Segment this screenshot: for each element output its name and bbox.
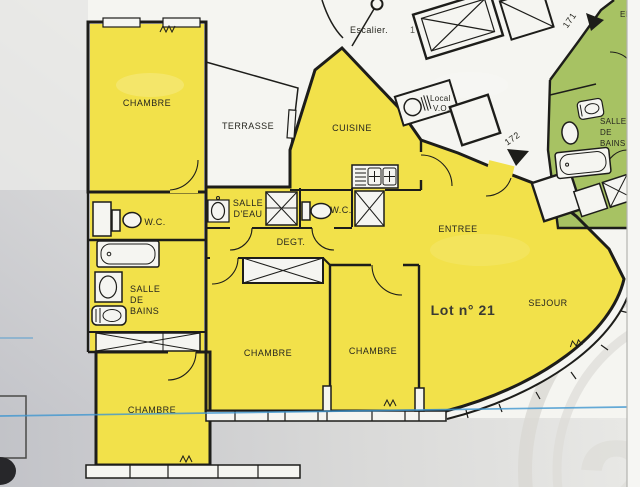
- lot-number-label: Lot n° 21: [431, 302, 496, 318]
- room-label-wc-mid: W.C.: [330, 205, 351, 215]
- toilet-icon-mid: [302, 202, 331, 220]
- page-margin-right: [627, 0, 640, 487]
- room-label-entree: ENTREE: [438, 224, 477, 234]
- closet-icon-degt: [243, 258, 323, 283]
- room-label-chambre-top-left: CHAMBRE: [123, 98, 171, 108]
- bidet-icon-left: [92, 306, 126, 325]
- room-label-sdb-right-3: BAINS: [600, 139, 626, 148]
- floor-plan-svg: 21: [0, 0, 640, 487]
- room-label-sdb-right-2: DE: [600, 128, 612, 137]
- shower-icon: [266, 192, 297, 225]
- bathtub-icon-green: [555, 147, 611, 179]
- room-label-salle-deau-2: D'EAU: [234, 209, 263, 219]
- room-label-sdb-left-3: BAINS: [130, 306, 159, 316]
- kitchen-sink-icon: [352, 165, 398, 188]
- room-label-sdb-left-1: SALLE: [130, 284, 160, 294]
- shower-tray-icon: [93, 202, 111, 236]
- room-label-degt: DEGT.: [277, 237, 306, 247]
- sink-icon-left: [95, 272, 122, 302]
- closet-icon-mid: [355, 191, 384, 226]
- room-label-local-vo-1: Local: [430, 94, 451, 103]
- room-label-sdb-right-1: SALLE: [600, 117, 626, 126]
- room-label-chambre-right: CHAMBRE: [349, 346, 397, 356]
- sink-icon-salle-deau: [208, 197, 229, 223]
- room-label-local-vo-2: V.O.: [433, 104, 449, 113]
- room-label-sejour: SEJOUR: [528, 298, 567, 308]
- room-label-salle-deau-1: SALLE: [233, 198, 263, 208]
- room-label-terrasse: TERRASSE: [222, 121, 274, 131]
- closet-icon-left: [96, 333, 200, 351]
- floor-plan-scan: 21: [0, 0, 640, 487]
- room-label-sdb-left-2: DE: [130, 295, 143, 305]
- room-label-escalier: Escalier.: [350, 25, 388, 35]
- room-label-chambre-center: CHAMBRE: [244, 348, 292, 358]
- room-label-wc-left: W.C.: [144, 217, 165, 227]
- bathtub-icon-left: [97, 241, 159, 267]
- room-label-escalier-number: 1: [410, 25, 415, 35]
- room-label-cuisine: CUISINE: [332, 123, 372, 133]
